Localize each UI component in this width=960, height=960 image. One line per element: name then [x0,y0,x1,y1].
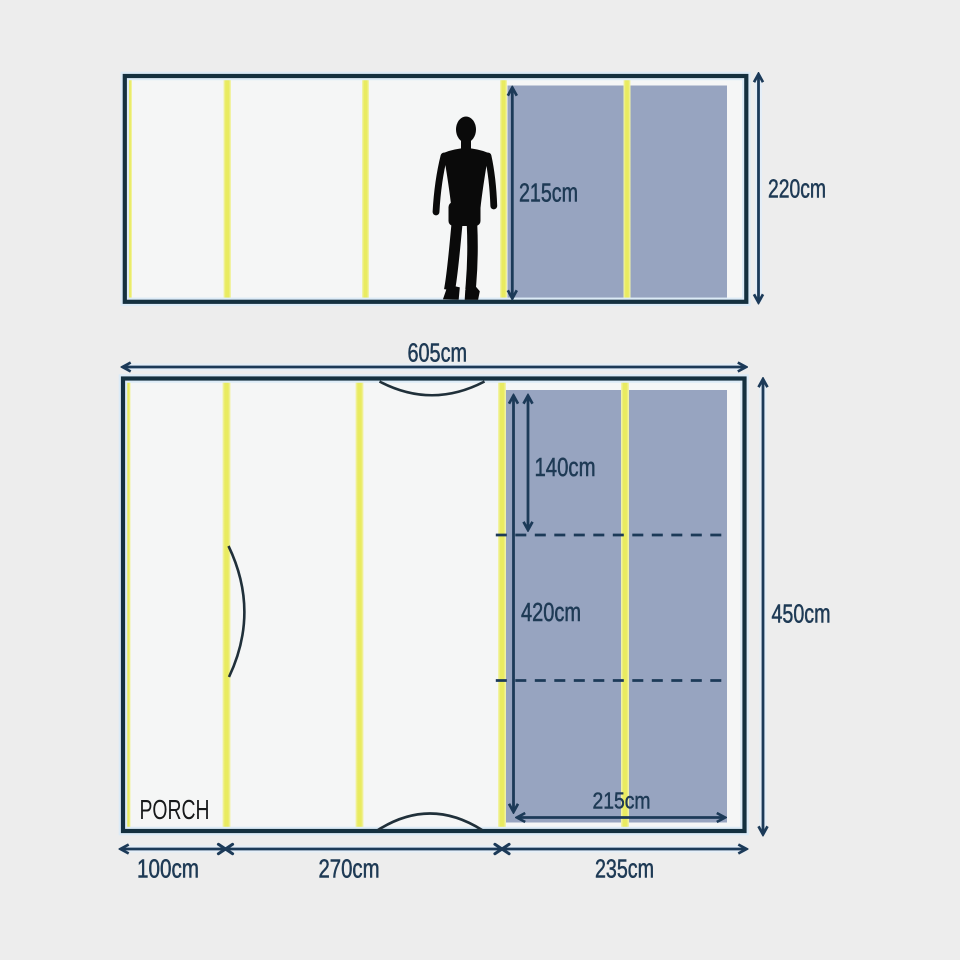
svg-text:235cm: 235cm [595,856,654,884]
svg-text:450cm: 450cm [772,601,831,629]
svg-text:215cm: 215cm [519,180,578,208]
svg-text:605cm: 605cm [408,340,468,368]
svg-text:270cm: 270cm [319,856,380,884]
svg-text:215cm: 215cm [593,788,651,814]
svg-text:220cm: 220cm [768,176,826,204]
svg-text:140cm: 140cm [535,454,596,482]
svg-text:PORCH: PORCH [140,794,210,825]
svg-text:100cm: 100cm [137,856,199,884]
svg-text:420cm: 420cm [521,599,581,627]
